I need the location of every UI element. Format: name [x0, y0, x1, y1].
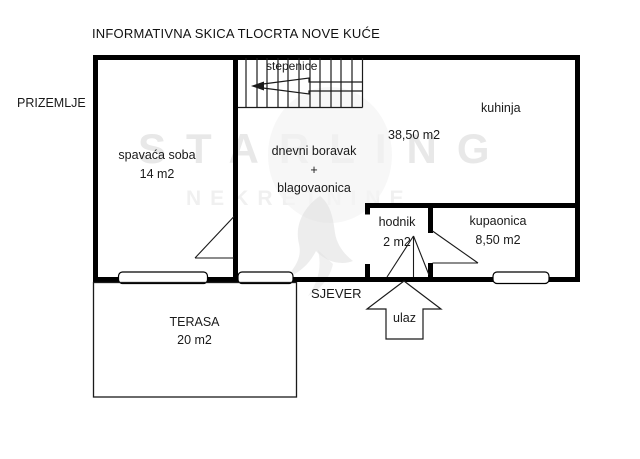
- page-title: INFORMATIVNA SKICA TLOCRTA NOVE KUĆE: [92, 26, 380, 42]
- bedroom-label: spavaća soba 14 m2: [93, 146, 221, 184]
- floor-plan-page: STARLING NEKRETNINE: [0, 0, 640, 459]
- terrace-label: TERASA 20 m2: [131, 314, 258, 349]
- entrance-label: ulaz: [386, 311, 423, 326]
- stairs-label: stepenice: [266, 59, 317, 73]
- bedroom-size: 14 m2: [93, 165, 221, 184]
- hallway-label: hodnik 2 m2: [366, 213, 428, 252]
- north-compass-label: SJEVER: [311, 286, 362, 302]
- kitchen-label: kuhinja: [481, 101, 521, 116]
- living-dining-size: 38,50 m2: [388, 128, 440, 143]
- bathroom-name: kupaonica: [443, 212, 553, 231]
- bathroom-label: kupaonica 8,50 m2: [443, 212, 553, 249]
- terrace-size: 20 m2: [131, 332, 258, 350]
- window-symbol: [493, 272, 549, 284]
- plus-sign: +: [240, 161, 388, 180]
- living-room-line: dnevni boravak: [240, 142, 388, 161]
- hallway-name: hodnik: [366, 213, 428, 233]
- hallway-size: 2 m2: [366, 233, 428, 253]
- window-symbol: [119, 272, 208, 284]
- dining-room-line: blagovaonica: [240, 179, 388, 198]
- terrace-name: TERASA: [131, 314, 258, 332]
- floor-level-label: PRIZEMLJE: [17, 96, 86, 111]
- stair-direction-arrow: [251, 78, 362, 94]
- bedroom-name: spavaća soba: [93, 146, 221, 165]
- bathroom-size: 8,50 m2: [443, 231, 553, 250]
- window-symbol: [238, 272, 293, 284]
- bedroom-door-swing: [195, 217, 234, 259]
- entrance-arrow-icon: [367, 281, 441, 339]
- living-dining-label: dnevni boravak + blagovaonica: [240, 142, 388, 198]
